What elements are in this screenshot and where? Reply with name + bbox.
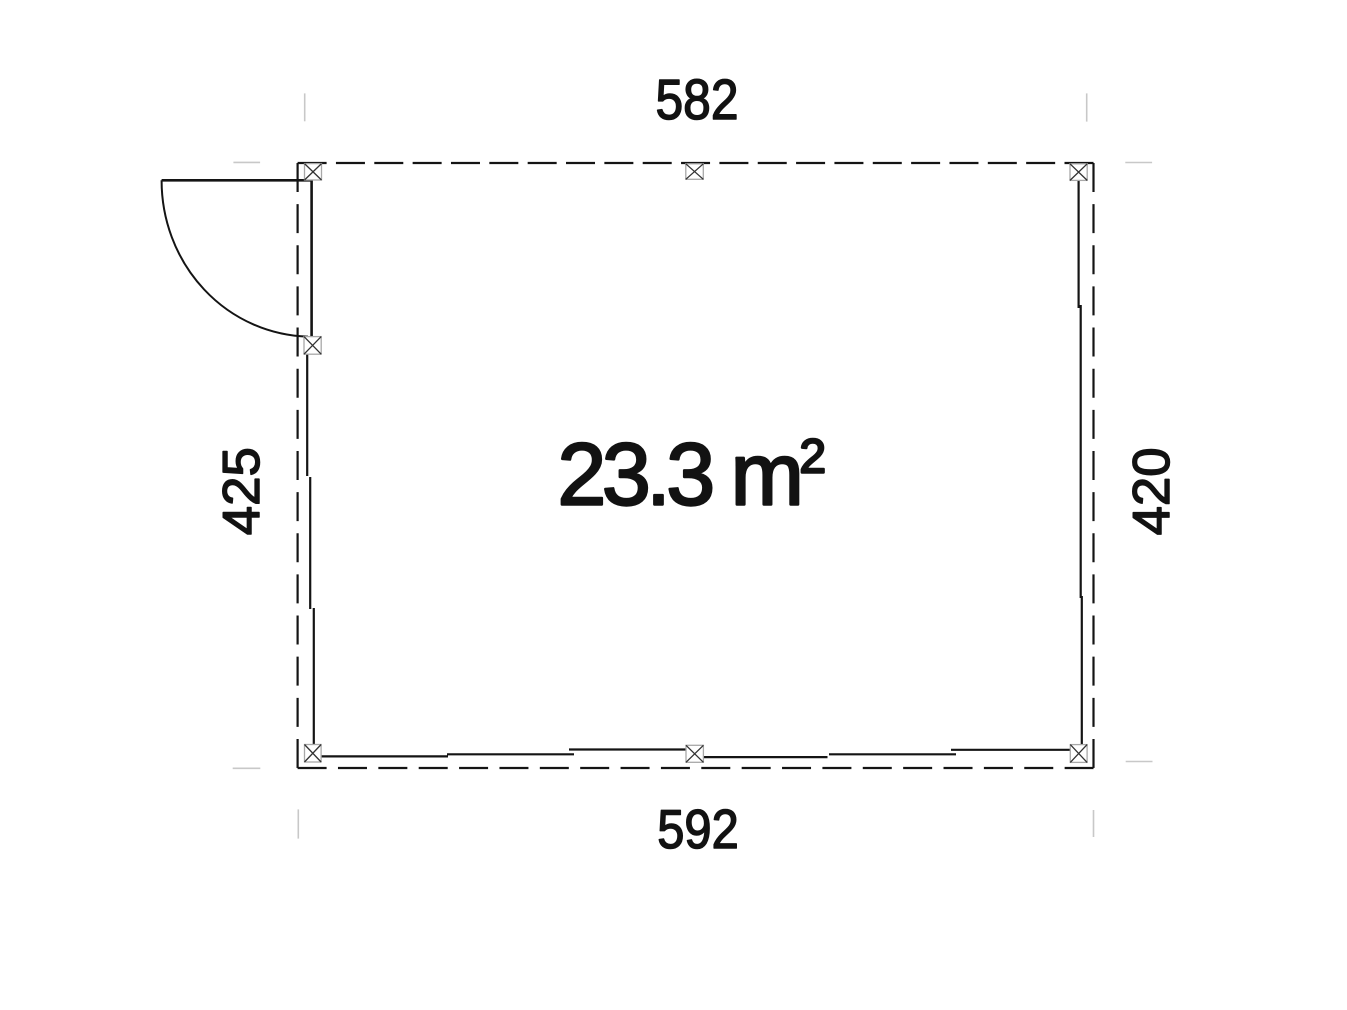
svg-text:23.3 m2: 23.3 m2 xyxy=(557,425,824,524)
svg-text:592: 592 xyxy=(657,798,739,860)
svg-text:420: 420 xyxy=(1123,447,1181,535)
svg-text:425: 425 xyxy=(213,447,271,535)
svg-text:582: 582 xyxy=(656,68,739,132)
